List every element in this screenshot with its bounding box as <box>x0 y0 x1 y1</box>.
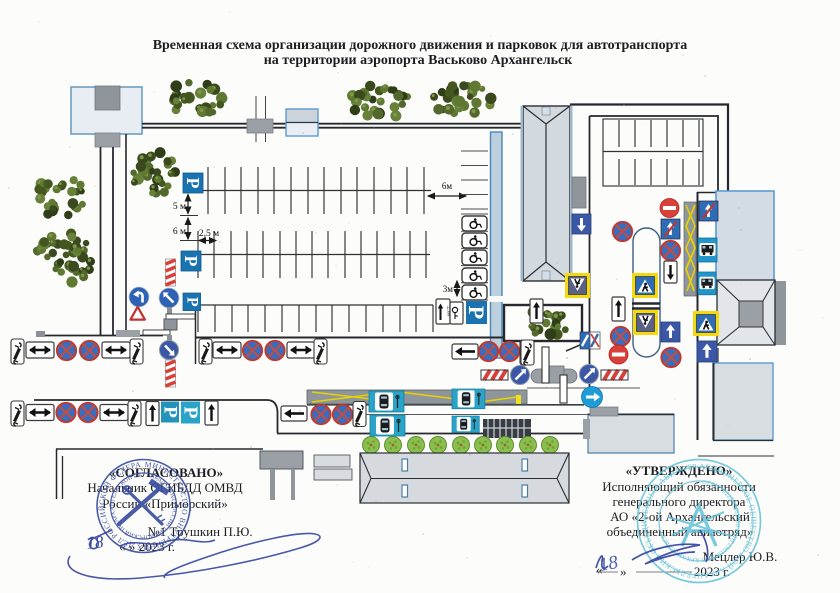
svg-text:на территории аэропорта Васько: на территории аэропорта Васьково Арханге… <box>264 53 574 68</box>
svg-text:3м: 3м <box>443 284 454 294</box>
svg-text:Временная схема организации до: Временная схема организации дорожного дв… <box>153 38 688 53</box>
svg-text:России «Приморский»: России «Приморский» <box>102 496 228 511</box>
svg-text:P: P <box>160 406 181 418</box>
svg-text:P: P <box>464 306 489 319</box>
svg-text:P: P <box>180 406 202 418</box>
svg-text:2,5 м: 2,5 м <box>199 229 219 239</box>
svg-text:5 м: 5 м <box>173 202 186 212</box>
svg-text:»: » <box>620 564 627 579</box>
svg-text:18: 18 <box>85 532 104 553</box>
svg-text:6 м: 6 м <box>173 227 186 237</box>
svg-text:6м: 6м <box>442 181 453 191</box>
